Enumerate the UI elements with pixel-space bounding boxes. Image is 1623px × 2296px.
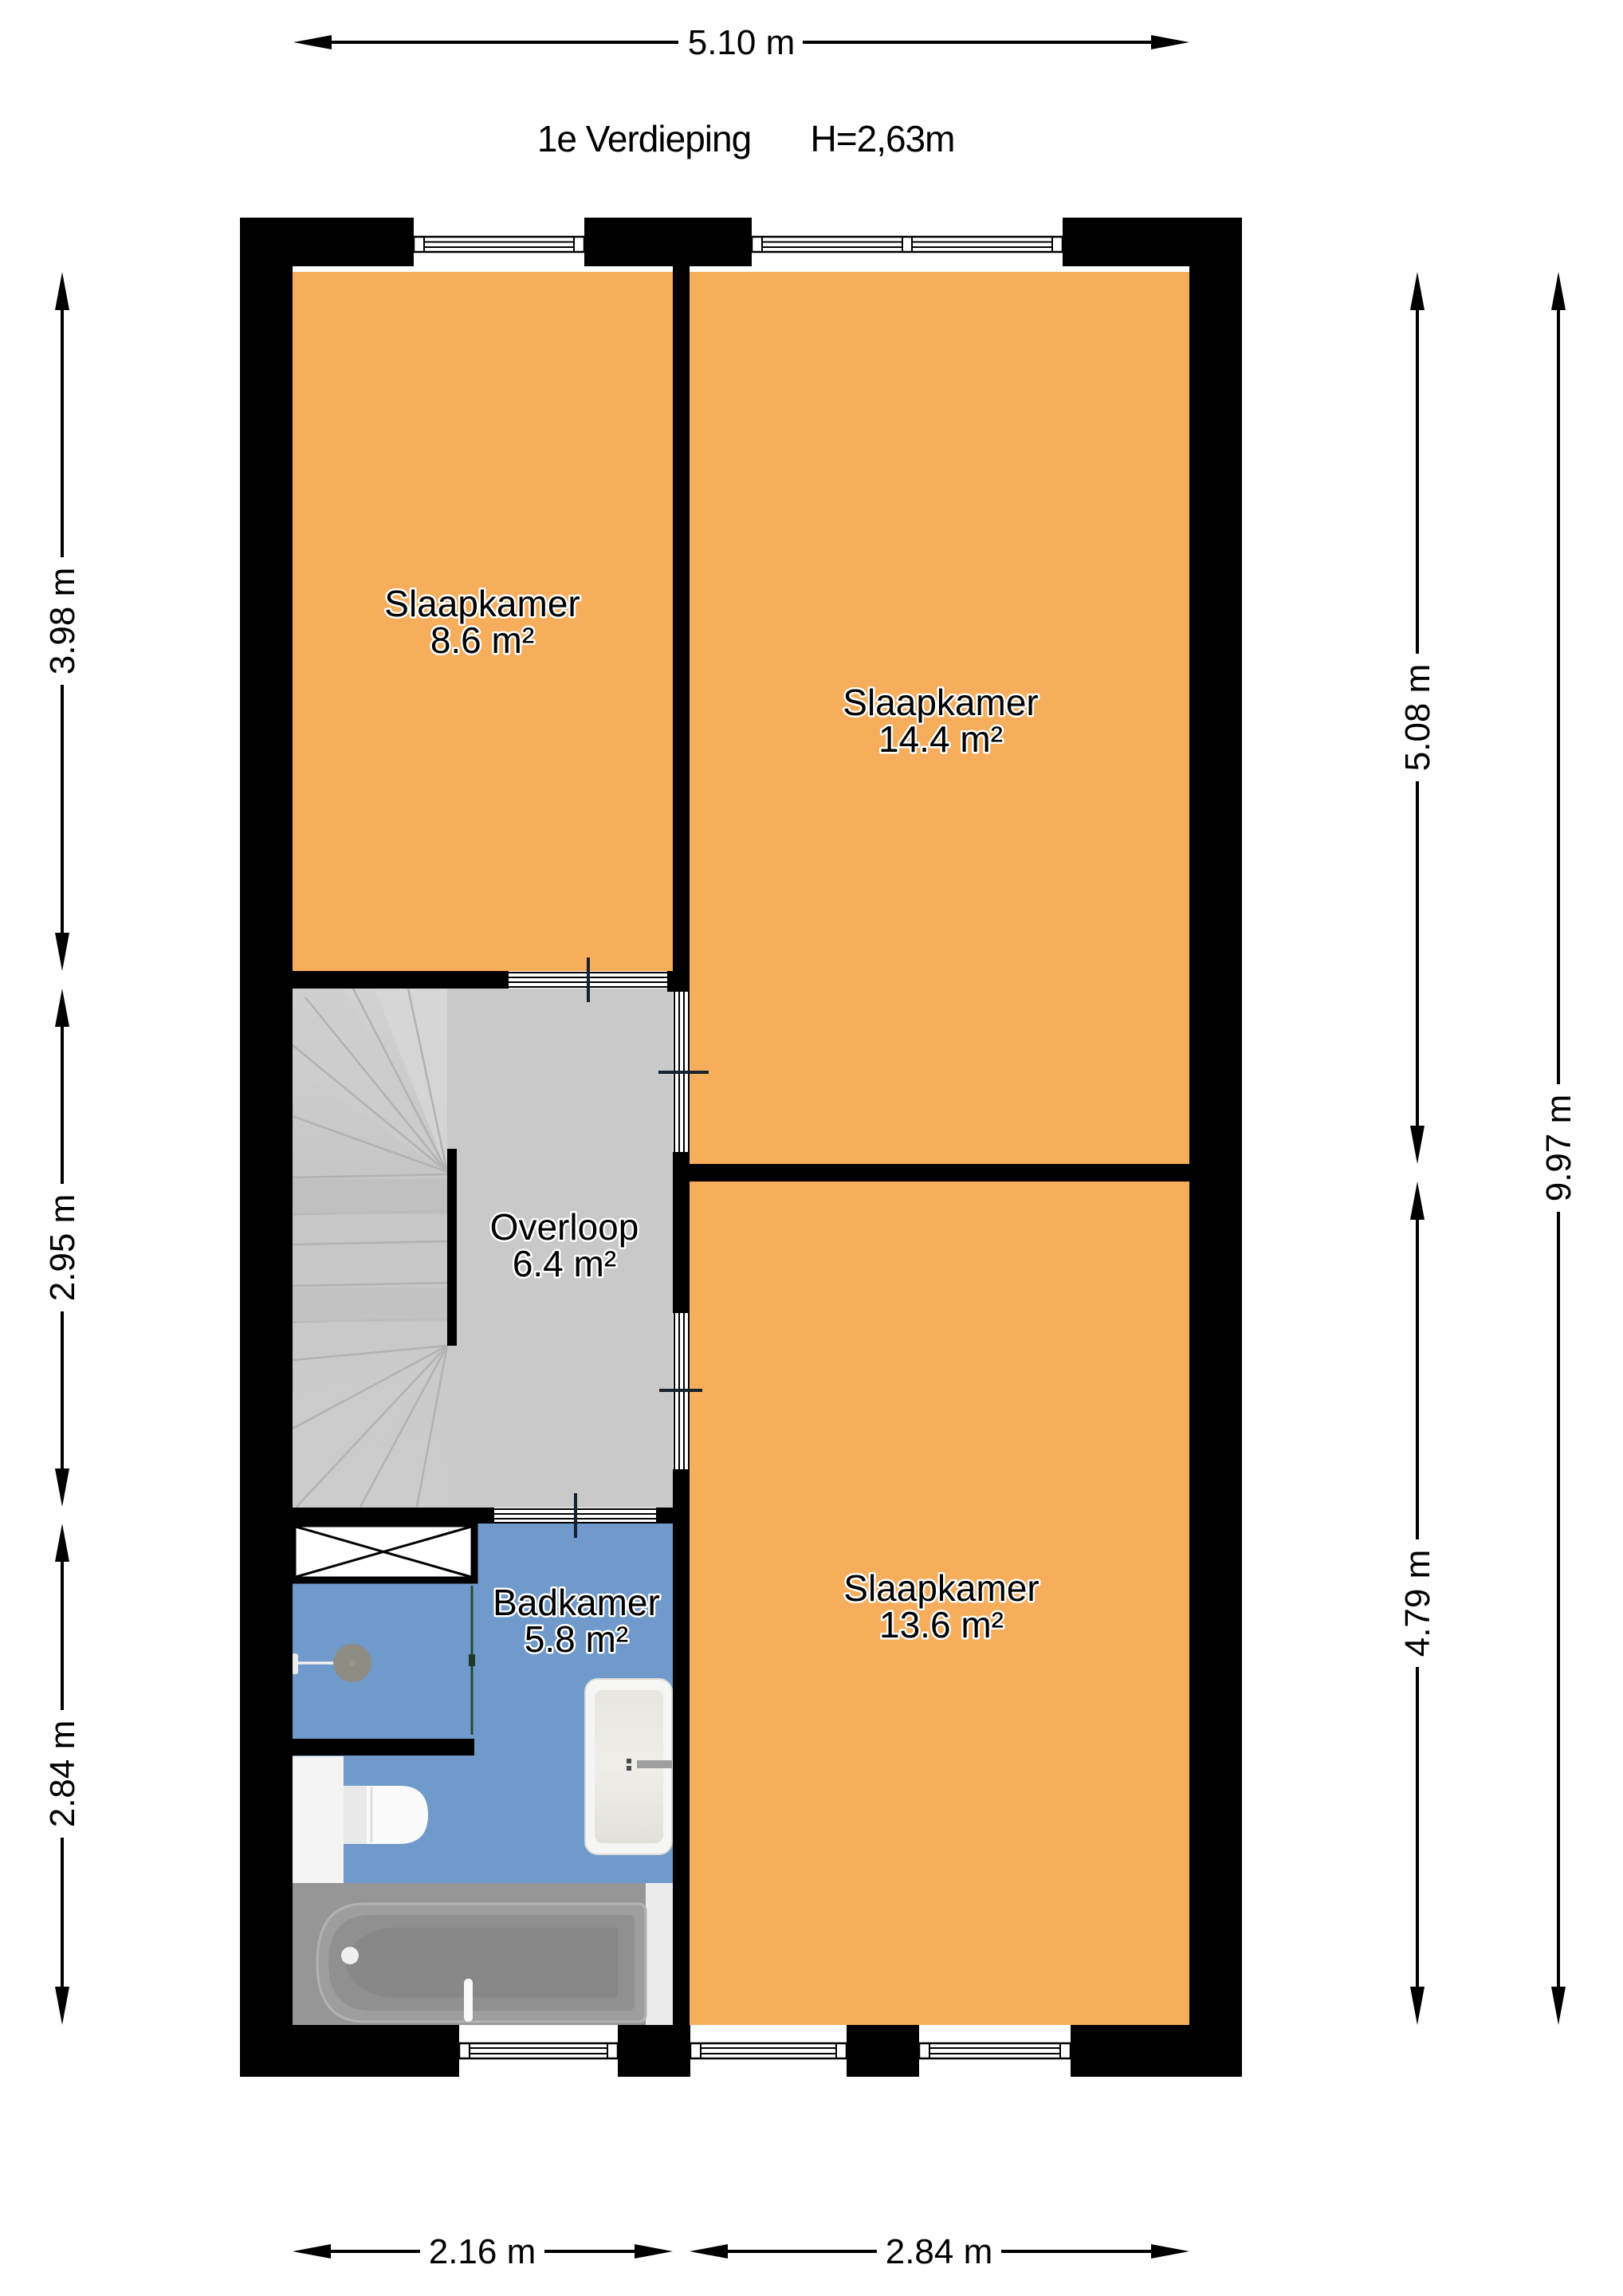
- svg-text:5.08 m: 5.08 m: [1398, 664, 1437, 772]
- svg-text:Slaapkamer: Slaapkamer: [843, 1567, 1039, 1609]
- svg-text:Slaapkamer: Slaapkamer: [384, 583, 580, 624]
- svg-text:14.4 m²: 14.4 m²: [878, 718, 1003, 760]
- svg-text:H=2,63m: H=2,63m: [811, 118, 955, 159]
- svg-text:9.97 m: 9.97 m: [1539, 1095, 1578, 1202]
- svg-text:6.4 m²: 6.4 m²: [513, 1243, 616, 1284]
- svg-text:5.8 m²: 5.8 m²: [525, 1618, 628, 1660]
- svg-text:Badkamer: Badkamer: [493, 1582, 660, 1623]
- svg-text:13.6 m²: 13.6 m²: [879, 1604, 1004, 1645]
- svg-text:Overloop: Overloop: [490, 1206, 639, 1248]
- svg-text:3.98 m: 3.98 m: [43, 568, 82, 675]
- svg-text:2.84 m: 2.84 m: [43, 1720, 82, 1828]
- svg-text:2.95 m: 2.95 m: [43, 1194, 82, 1302]
- svg-text:5.10 m: 5.10 m: [688, 23, 796, 62]
- svg-text:2.84 m: 2.84 m: [886, 2232, 993, 2271]
- svg-text:Slaapkamer: Slaapkamer: [843, 682, 1038, 723]
- svg-text:8.6 m²: 8.6 m²: [430, 619, 534, 661]
- svg-text:2.16 m: 2.16 m: [429, 2232, 536, 2271]
- svg-text:4.79 m: 4.79 m: [1398, 1550, 1437, 1657]
- svg-text:1e Verdieping: 1e Verdieping: [537, 118, 751, 159]
